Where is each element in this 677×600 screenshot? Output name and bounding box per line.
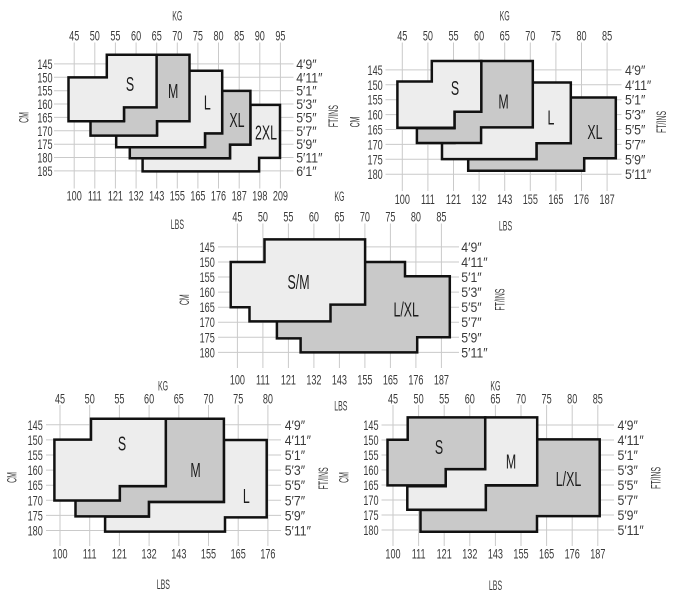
svg-text:LBS: LBS	[334, 399, 347, 414]
svg-text:FT/INS: FT/INS	[316, 467, 331, 489]
svg-text:5′1″: 5′1″	[618, 447, 639, 463]
svg-text:70: 70	[360, 209, 370, 226]
svg-text:50: 50	[90, 27, 100, 44]
svg-text:45: 45	[55, 390, 65, 407]
svg-text:5′3″: 5′3″	[625, 107, 646, 123]
svg-text:165: 165	[190, 188, 206, 205]
svg-text:80: 80	[263, 390, 273, 407]
svg-text:111: 111	[412, 545, 426, 562]
svg-text:165: 165	[548, 191, 564, 208]
svg-text:132: 132	[306, 371, 321, 388]
svg-text:LBS: LBS	[157, 578, 170, 593]
svg-text:60: 60	[144, 390, 154, 407]
svg-text:XL: XL	[229, 109, 244, 132]
svg-text:50: 50	[414, 390, 424, 407]
svg-text:5′1″: 5′1″	[461, 269, 482, 285]
svg-text:121: 121	[437, 545, 452, 562]
svg-text:143: 143	[497, 191, 513, 208]
svg-text:4′9″: 4′9″	[285, 417, 306, 433]
svg-text:5′11″: 5′11″	[625, 166, 652, 182]
svg-text:5′11″: 5′11″	[618, 522, 645, 538]
svg-text:FT/INS: FT/INS	[655, 111, 670, 133]
svg-text:180: 180	[363, 522, 379, 539]
svg-text:85: 85	[602, 28, 612, 45]
svg-text:85: 85	[436, 209, 446, 226]
svg-text:60: 60	[465, 390, 475, 407]
svg-text:80: 80	[576, 28, 586, 45]
svg-text:155: 155	[28, 447, 44, 464]
svg-text:80: 80	[567, 390, 577, 407]
svg-text:165: 165	[28, 477, 44, 494]
svg-text:5′9″: 5′9″	[618, 507, 639, 523]
svg-text:90: 90	[255, 27, 265, 44]
svg-text:FT/INS: FT/INS	[493, 289, 508, 311]
svg-text:121: 121	[112, 545, 127, 562]
svg-text:M: M	[506, 451, 516, 474]
svg-text:5′9″: 5′9″	[461, 330, 482, 346]
svg-text:55: 55	[439, 390, 449, 407]
svg-text:S: S	[126, 73, 134, 96]
svg-text:5′11″: 5′11″	[461, 345, 488, 361]
svg-text:143: 143	[332, 371, 348, 388]
svg-text:176: 176	[565, 545, 581, 562]
svg-text:111: 111	[88, 188, 102, 205]
svg-text:121: 121	[446, 191, 461, 208]
svg-text:5′3″: 5′3″	[618, 462, 639, 478]
svg-text:CM: CM	[337, 472, 352, 483]
svg-text:175: 175	[28, 507, 44, 524]
svg-text:185: 185	[37, 163, 53, 180]
svg-text:S/M: S/M	[287, 271, 309, 294]
svg-text:4′11″: 4′11″	[618, 432, 645, 448]
svg-text:65: 65	[500, 28, 510, 45]
svg-text:70: 70	[516, 390, 526, 407]
svg-text:121: 121	[281, 371, 296, 388]
svg-text:S: S	[118, 433, 126, 456]
svg-text:180: 180	[28, 522, 44, 539]
svg-text:5′9″: 5′9″	[285, 508, 306, 524]
svg-text:5′5″: 5′5″	[625, 122, 646, 138]
svg-text:121: 121	[108, 188, 123, 205]
svg-text:60: 60	[309, 209, 319, 226]
svg-text:FT/INS: FT/INS	[649, 467, 664, 489]
svg-text:155: 155	[513, 545, 529, 562]
svg-text:80: 80	[411, 209, 421, 226]
svg-text:155: 155	[170, 188, 186, 205]
svg-text:145: 145	[28, 417, 44, 434]
svg-text:143: 143	[488, 545, 504, 562]
svg-text:75: 75	[542, 390, 552, 407]
svg-text:95: 95	[275, 27, 285, 44]
svg-text:198: 198	[252, 188, 268, 205]
svg-text:5′7″: 5′7″	[461, 314, 482, 330]
svg-text:5′7″: 5′7″	[618, 492, 639, 508]
svg-text:70: 70	[203, 390, 213, 407]
svg-text:55: 55	[448, 28, 458, 45]
svg-text:132: 132	[462, 545, 477, 562]
svg-text:100: 100	[395, 191, 411, 208]
svg-text:CM: CM	[5, 472, 20, 483]
svg-text:65: 65	[174, 390, 184, 407]
svg-text:2XL: 2XL	[255, 122, 277, 145]
svg-text:4′9″: 4′9″	[461, 239, 482, 255]
svg-text:S: S	[451, 77, 459, 100]
svg-text:160: 160	[28, 462, 44, 479]
svg-text:45: 45	[388, 390, 398, 407]
svg-text:80: 80	[213, 27, 223, 44]
svg-text:75: 75	[233, 390, 243, 407]
svg-text:70: 70	[172, 27, 182, 44]
svg-text:5′9″: 5′9″	[625, 152, 646, 168]
svg-text:55: 55	[114, 390, 124, 407]
svg-text:L: L	[548, 106, 555, 129]
svg-text:160: 160	[200, 284, 216, 301]
svg-text:65: 65	[152, 27, 162, 44]
svg-text:6′1″: 6′1″	[296, 163, 317, 179]
svg-text:5′3″: 5′3″	[461, 284, 482, 300]
svg-text:70: 70	[525, 28, 535, 45]
svg-text:180: 180	[200, 344, 216, 361]
svg-text:155: 155	[200, 269, 216, 286]
svg-text:75: 75	[551, 28, 561, 45]
svg-text:M: M	[168, 80, 178, 103]
svg-text:5′7″: 5′7″	[625, 137, 646, 153]
svg-text:143: 143	[149, 188, 165, 205]
svg-text:4′11″: 4′11″	[625, 77, 652, 93]
svg-text:XL: XL	[587, 121, 602, 144]
svg-text:L: L	[204, 91, 211, 114]
svg-text:M: M	[190, 459, 200, 482]
svg-text:45: 45	[69, 27, 79, 44]
svg-text:187: 187	[434, 371, 449, 388]
svg-text:KG: KG	[158, 379, 168, 394]
svg-text:150: 150	[28, 432, 44, 449]
svg-text:165: 165	[231, 545, 247, 562]
svg-text:55: 55	[283, 209, 293, 226]
svg-text:111: 111	[256, 371, 270, 388]
svg-text:4′9″: 4′9″	[618, 417, 639, 433]
svg-text:60: 60	[131, 27, 141, 44]
svg-text:176: 176	[408, 371, 424, 388]
svg-text:50: 50	[423, 28, 433, 45]
svg-text:209: 209	[273, 188, 288, 205]
svg-text:5′1″: 5′1″	[285, 447, 306, 463]
svg-text:111: 111	[421, 191, 435, 208]
svg-text:5′1″: 5′1″	[625, 92, 646, 108]
svg-text:4′9″: 4′9″	[625, 62, 646, 78]
svg-text:CM: CM	[178, 294, 193, 305]
svg-text:LBS: LBS	[171, 218, 184, 233]
svg-text:5′11″: 5′11″	[285, 523, 312, 539]
svg-text:KG: KG	[334, 190, 344, 205]
svg-text:85: 85	[234, 27, 244, 44]
svg-text:KG: KG	[172, 9, 182, 24]
svg-text:5′5″: 5′5″	[285, 477, 306, 493]
svg-text:170: 170	[28, 492, 44, 509]
svg-text:132: 132	[472, 191, 487, 208]
svg-text:KG: KG	[490, 379, 500, 394]
svg-text:100: 100	[67, 188, 83, 205]
svg-text:111: 111	[83, 545, 97, 562]
svg-text:143: 143	[171, 545, 187, 562]
svg-text:55: 55	[110, 27, 120, 44]
svg-text:155: 155	[523, 191, 539, 208]
svg-text:165: 165	[383, 371, 399, 388]
svg-text:100: 100	[230, 371, 246, 388]
svg-text:KG: KG	[500, 9, 510, 24]
svg-text:175: 175	[200, 329, 216, 346]
svg-text:176: 176	[260, 545, 276, 562]
svg-text:65: 65	[334, 209, 344, 226]
svg-text:155: 155	[357, 371, 373, 388]
svg-text:176: 176	[574, 191, 590, 208]
svg-text:187: 187	[232, 188, 247, 205]
svg-text:L/XL: L/XL	[393, 298, 418, 321]
svg-text:187: 187	[600, 191, 615, 208]
svg-text:85: 85	[593, 390, 603, 407]
svg-text:CM: CM	[17, 112, 32, 123]
svg-text:165: 165	[539, 545, 555, 562]
svg-text:132: 132	[129, 188, 144, 205]
svg-text:5′7″: 5′7″	[285, 493, 306, 509]
svg-text:L: L	[243, 485, 250, 508]
svg-text:75: 75	[385, 209, 395, 226]
svg-text:50: 50	[85, 390, 95, 407]
svg-text:S: S	[435, 436, 443, 459]
svg-text:60: 60	[474, 28, 484, 45]
svg-text:176: 176	[211, 188, 227, 205]
svg-text:45: 45	[232, 209, 242, 226]
svg-text:FT/INS: FT/INS	[327, 105, 342, 127]
svg-text:75: 75	[193, 27, 203, 44]
svg-text:L/XL: L/XL	[556, 468, 581, 491]
svg-text:100: 100	[385, 545, 401, 562]
svg-text:187: 187	[590, 545, 605, 562]
svg-text:LBS: LBS	[489, 579, 502, 594]
svg-text:100: 100	[52, 545, 68, 562]
svg-text:4′11″: 4′11″	[461, 254, 488, 270]
svg-text:50: 50	[258, 209, 268, 226]
svg-text:132: 132	[142, 545, 157, 562]
svg-text:LBS: LBS	[499, 219, 512, 234]
svg-text:4′11″: 4′11″	[285, 432, 312, 448]
svg-text:CM: CM	[348, 117, 363, 128]
svg-text:M: M	[498, 91, 508, 114]
svg-text:5′3″: 5′3″	[285, 462, 306, 478]
svg-text:145: 145	[200, 239, 216, 256]
svg-text:45: 45	[397, 28, 407, 45]
svg-text:155: 155	[201, 545, 217, 562]
svg-text:180: 180	[368, 166, 384, 183]
svg-text:5′5″: 5′5″	[461, 299, 482, 315]
svg-text:170: 170	[200, 314, 216, 331]
svg-text:5′5″: 5′5″	[618, 477, 639, 493]
